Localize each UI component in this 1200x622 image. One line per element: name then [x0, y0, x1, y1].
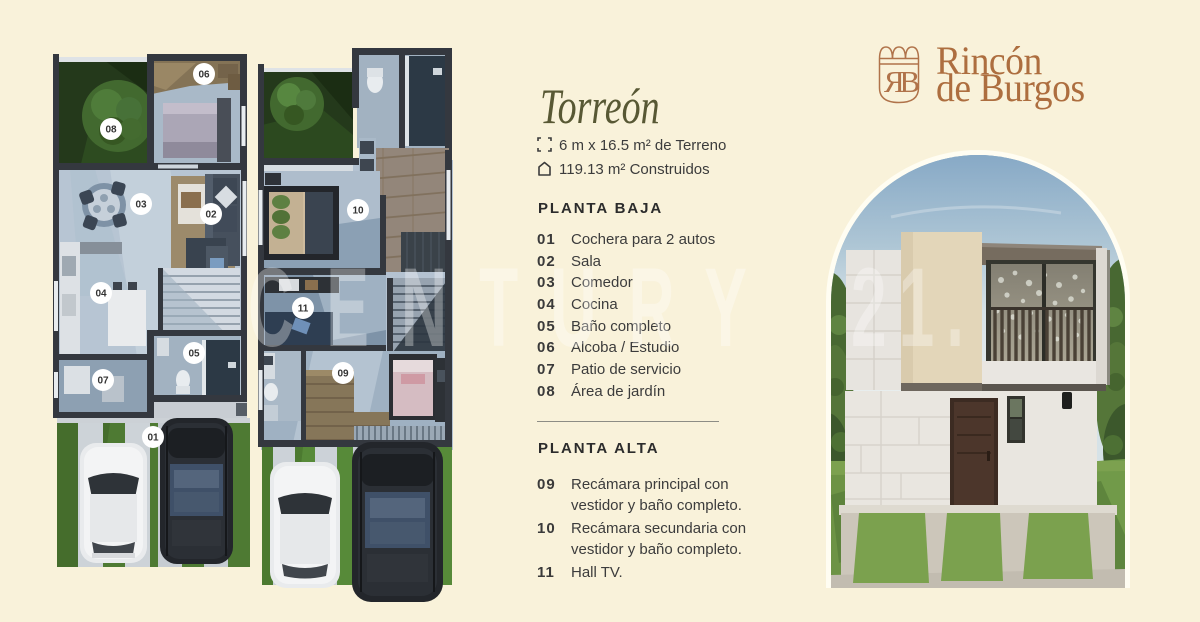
svg-text:04: 04: [95, 289, 107, 300]
svg-text:10: 10: [352, 206, 364, 217]
svg-text:03: 03: [135, 200, 147, 211]
svg-text:07: 07: [97, 376, 109, 387]
svg-text:01: 01: [147, 433, 159, 444]
svg-text:05: 05: [188, 349, 200, 360]
svg-text:02: 02: [205, 210, 217, 221]
svg-text:06: 06: [198, 70, 210, 81]
svg-text:08: 08: [105, 125, 117, 136]
svg-text:ЯB: ЯB: [884, 64, 920, 99]
